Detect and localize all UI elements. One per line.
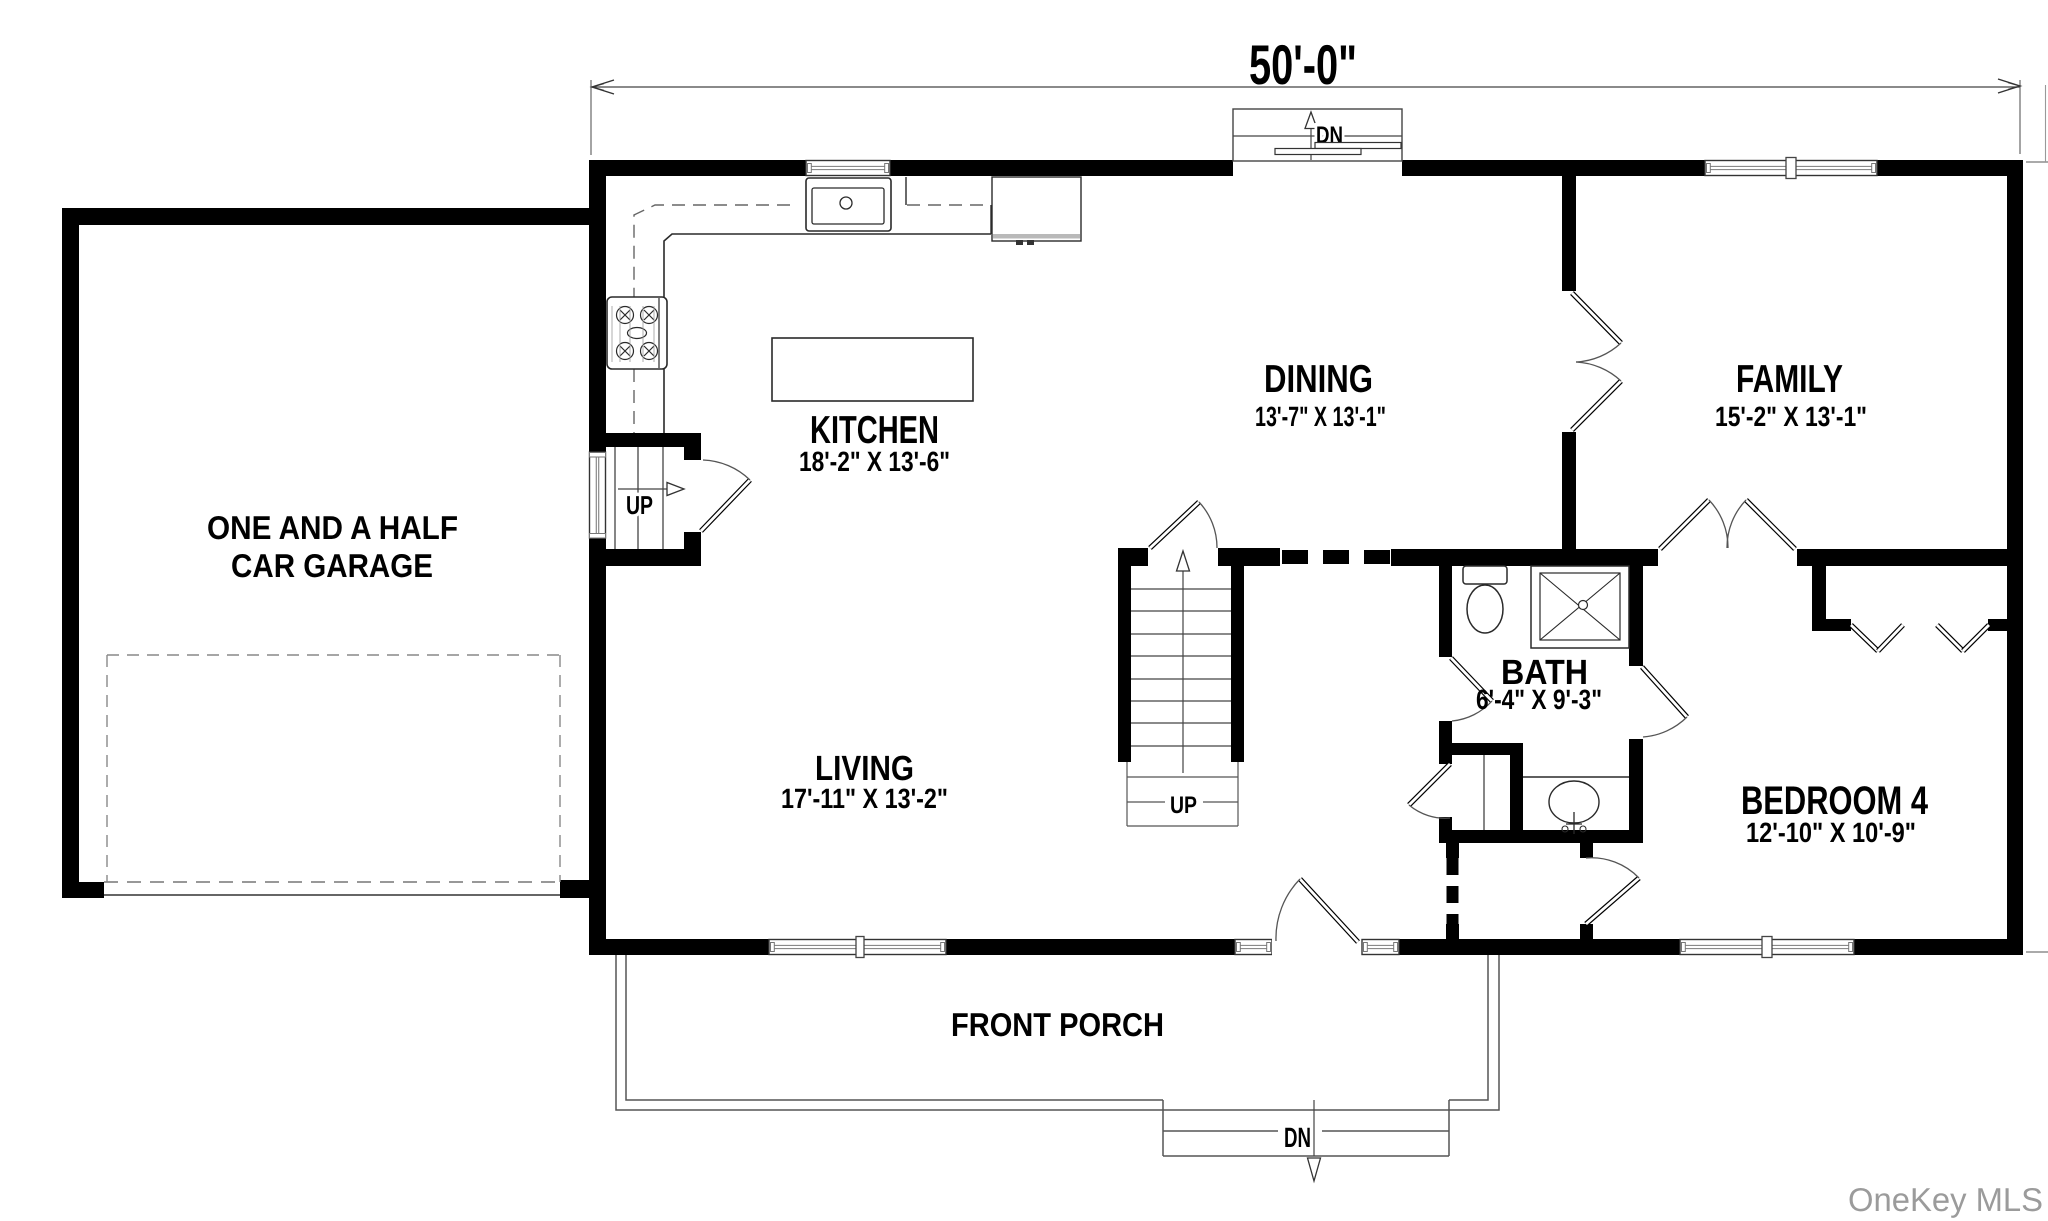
svg-text:OneKey MLS: OneKey MLS [1848,1181,2043,1218]
svg-text:FRONT PORCH: FRONT PORCH [951,1006,1164,1043]
svg-text:CAR GARAGE: CAR GARAGE [231,547,433,584]
svg-text:18'-2" X 13'-6": 18'-2" X 13'-6" [799,446,950,477]
svg-text:15'-2" X 13'-1": 15'-2" X 13'-1" [1715,401,1867,432]
svg-text:UP: UP [626,490,653,520]
svg-text:UP: UP [1170,792,1197,819]
svg-text:13'-7" X 13'-1": 13'-7" X 13'-1" [1255,401,1386,432]
svg-text:12'-10" X 10'-9": 12'-10" X 10'-9" [1746,817,1916,848]
svg-text:17'-11" X 13'-2": 17'-11" X 13'-2" [781,783,948,814]
svg-text:FAMILY: FAMILY [1736,358,1843,401]
svg-text:6'-4" X 9'-3": 6'-4" X 9'-3" [1476,684,1602,715]
svg-text:DN: DN [1284,1122,1311,1153]
svg-text:DINING: DINING [1264,358,1373,401]
svg-text:ONE AND A HALF: ONE AND A HALF [207,509,458,546]
